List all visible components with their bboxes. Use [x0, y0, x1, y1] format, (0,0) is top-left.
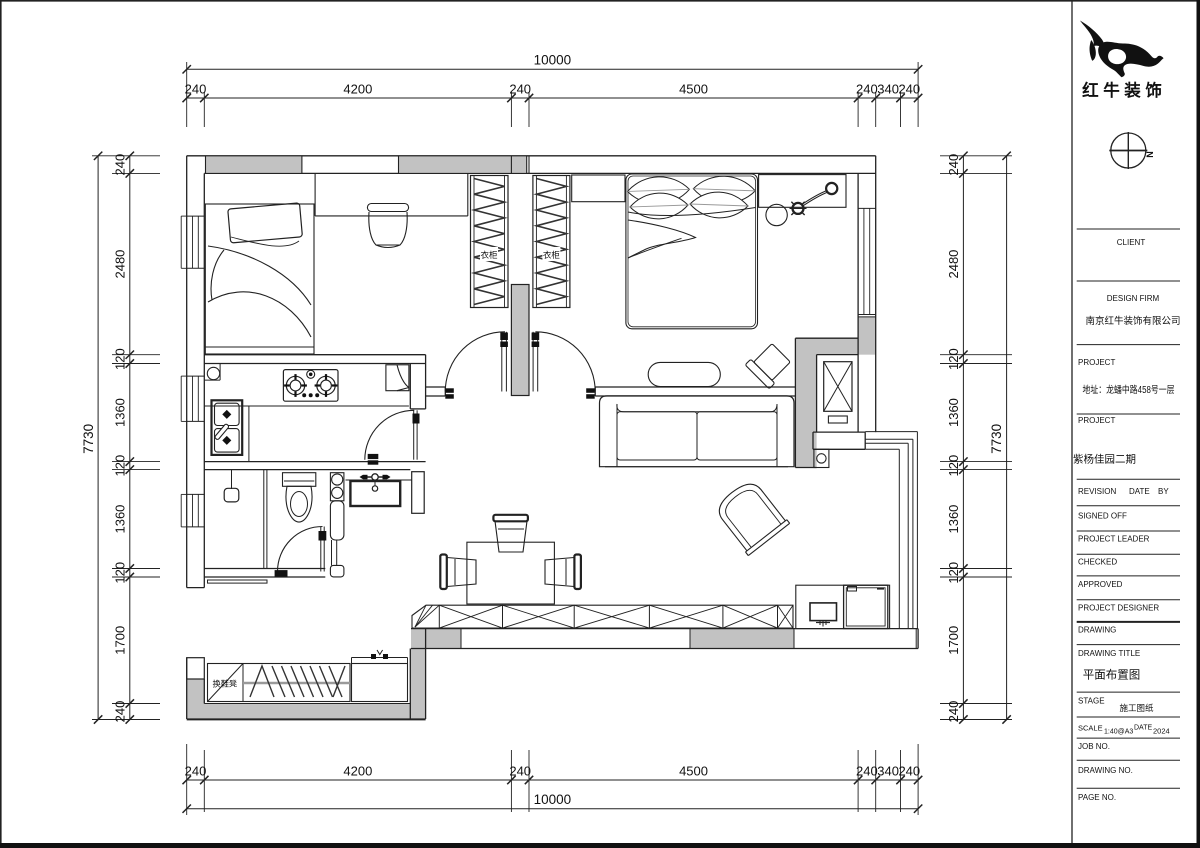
svg-text:PROJECT DESIGNER: PROJECT DESIGNER — [1078, 604, 1159, 613]
svg-text:2024: 2024 — [1153, 727, 1170, 736]
svg-text:120: 120 — [946, 348, 961, 370]
svg-text:1700: 1700 — [113, 626, 128, 655]
svg-text:衣柜: 衣柜 — [543, 250, 561, 260]
svg-text:红 牛 装 饰: 红 牛 装 饰 — [1082, 80, 1162, 100]
svg-text:换鞋凳: 换鞋凳 — [213, 679, 238, 689]
svg-text:120: 120 — [113, 562, 128, 584]
svg-text:1360: 1360 — [946, 505, 961, 534]
svg-text:1700: 1700 — [946, 626, 961, 655]
svg-text:120: 120 — [113, 348, 128, 370]
svg-text:N: N — [1145, 151, 1155, 158]
svg-text:7730: 7730 — [81, 424, 96, 454]
svg-text:10000: 10000 — [534, 53, 572, 68]
svg-text:DRAWING TITLE: DRAWING TITLE — [1078, 649, 1140, 658]
svg-text:CLIENT: CLIENT — [1117, 238, 1146, 247]
svg-text:SIGNED OFF: SIGNED OFF — [1078, 512, 1127, 521]
svg-text:1360: 1360 — [946, 398, 961, 427]
svg-text:340: 340 — [877, 82, 899, 97]
svg-text:JOB NO.: JOB NO. — [1078, 742, 1110, 751]
svg-text:240: 240 — [856, 764, 878, 779]
svg-text:1:40@A3: 1:40@A3 — [1104, 729, 1133, 736]
svg-text:2480: 2480 — [946, 250, 961, 279]
svg-text:施工图纸: 施工图纸 — [1119, 703, 1154, 713]
svg-text:340: 340 — [877, 764, 899, 779]
svg-text:平面布置图: 平面布置图 — [1083, 669, 1141, 682]
svg-text:240: 240 — [946, 154, 961, 176]
svg-text:衣柜: 衣柜 — [480, 250, 498, 260]
svg-text:PROJECT LEADER: PROJECT LEADER — [1078, 535, 1150, 544]
svg-text:4200: 4200 — [343, 82, 372, 97]
svg-text:DRAWING: DRAWING — [1078, 626, 1116, 635]
svg-text:4500: 4500 — [679, 82, 708, 97]
svg-text:240: 240 — [113, 701, 128, 723]
svg-text:PROJECT: PROJECT — [1078, 358, 1115, 367]
svg-text:240: 240 — [898, 82, 920, 97]
svg-text:APPROVED: APPROVED — [1078, 580, 1123, 589]
svg-text:120: 120 — [113, 455, 128, 477]
svg-text:PROJECT: PROJECT — [1078, 416, 1115, 425]
svg-text:南京红牛装饰有限公司: 南京红牛装饰有限公司 — [1085, 315, 1180, 327]
svg-text:DESIGN FIRM: DESIGN FIRM — [1107, 294, 1160, 303]
svg-text:2480: 2480 — [113, 250, 128, 279]
svg-text:240: 240 — [856, 82, 878, 97]
svg-text:STAGE: STAGE — [1078, 697, 1105, 706]
svg-text:7730: 7730 — [989, 424, 1004, 454]
svg-text:240: 240 — [185, 764, 207, 779]
svg-text:紫杨佳园二期: 紫杨佳园二期 — [1073, 453, 1136, 466]
svg-text:CHECKED: CHECKED — [1078, 558, 1117, 567]
svg-text:240: 240 — [185, 82, 207, 97]
svg-text:DATE: DATE — [1129, 487, 1150, 496]
svg-text:4200: 4200 — [343, 764, 372, 779]
svg-text:PAGE NO.: PAGE NO. — [1078, 793, 1116, 802]
svg-text:DATE: DATE — [1134, 725, 1152, 732]
svg-text:1360: 1360 — [113, 398, 128, 427]
svg-text:BY: BY — [1158, 487, 1169, 496]
svg-text:地址：龙蟠中路458号一层: 地址：龙蟠中路458号一层 — [1083, 383, 1175, 396]
svg-text:240: 240 — [509, 764, 531, 779]
svg-text:240: 240 — [946, 701, 961, 723]
svg-text:120: 120 — [946, 455, 961, 477]
svg-text:DRAWING NO.: DRAWING NO. — [1078, 766, 1133, 775]
svg-text:240: 240 — [898, 764, 920, 779]
svg-text:240: 240 — [509, 82, 531, 97]
svg-text:4500: 4500 — [679, 764, 708, 779]
svg-text:REVISION: REVISION — [1078, 487, 1116, 496]
svg-text:240: 240 — [113, 154, 128, 176]
svg-text:10000: 10000 — [534, 792, 572, 807]
svg-text:120: 120 — [946, 562, 961, 584]
svg-text:1360: 1360 — [113, 505, 128, 534]
svg-text:SCALE: SCALE — [1078, 724, 1103, 733]
